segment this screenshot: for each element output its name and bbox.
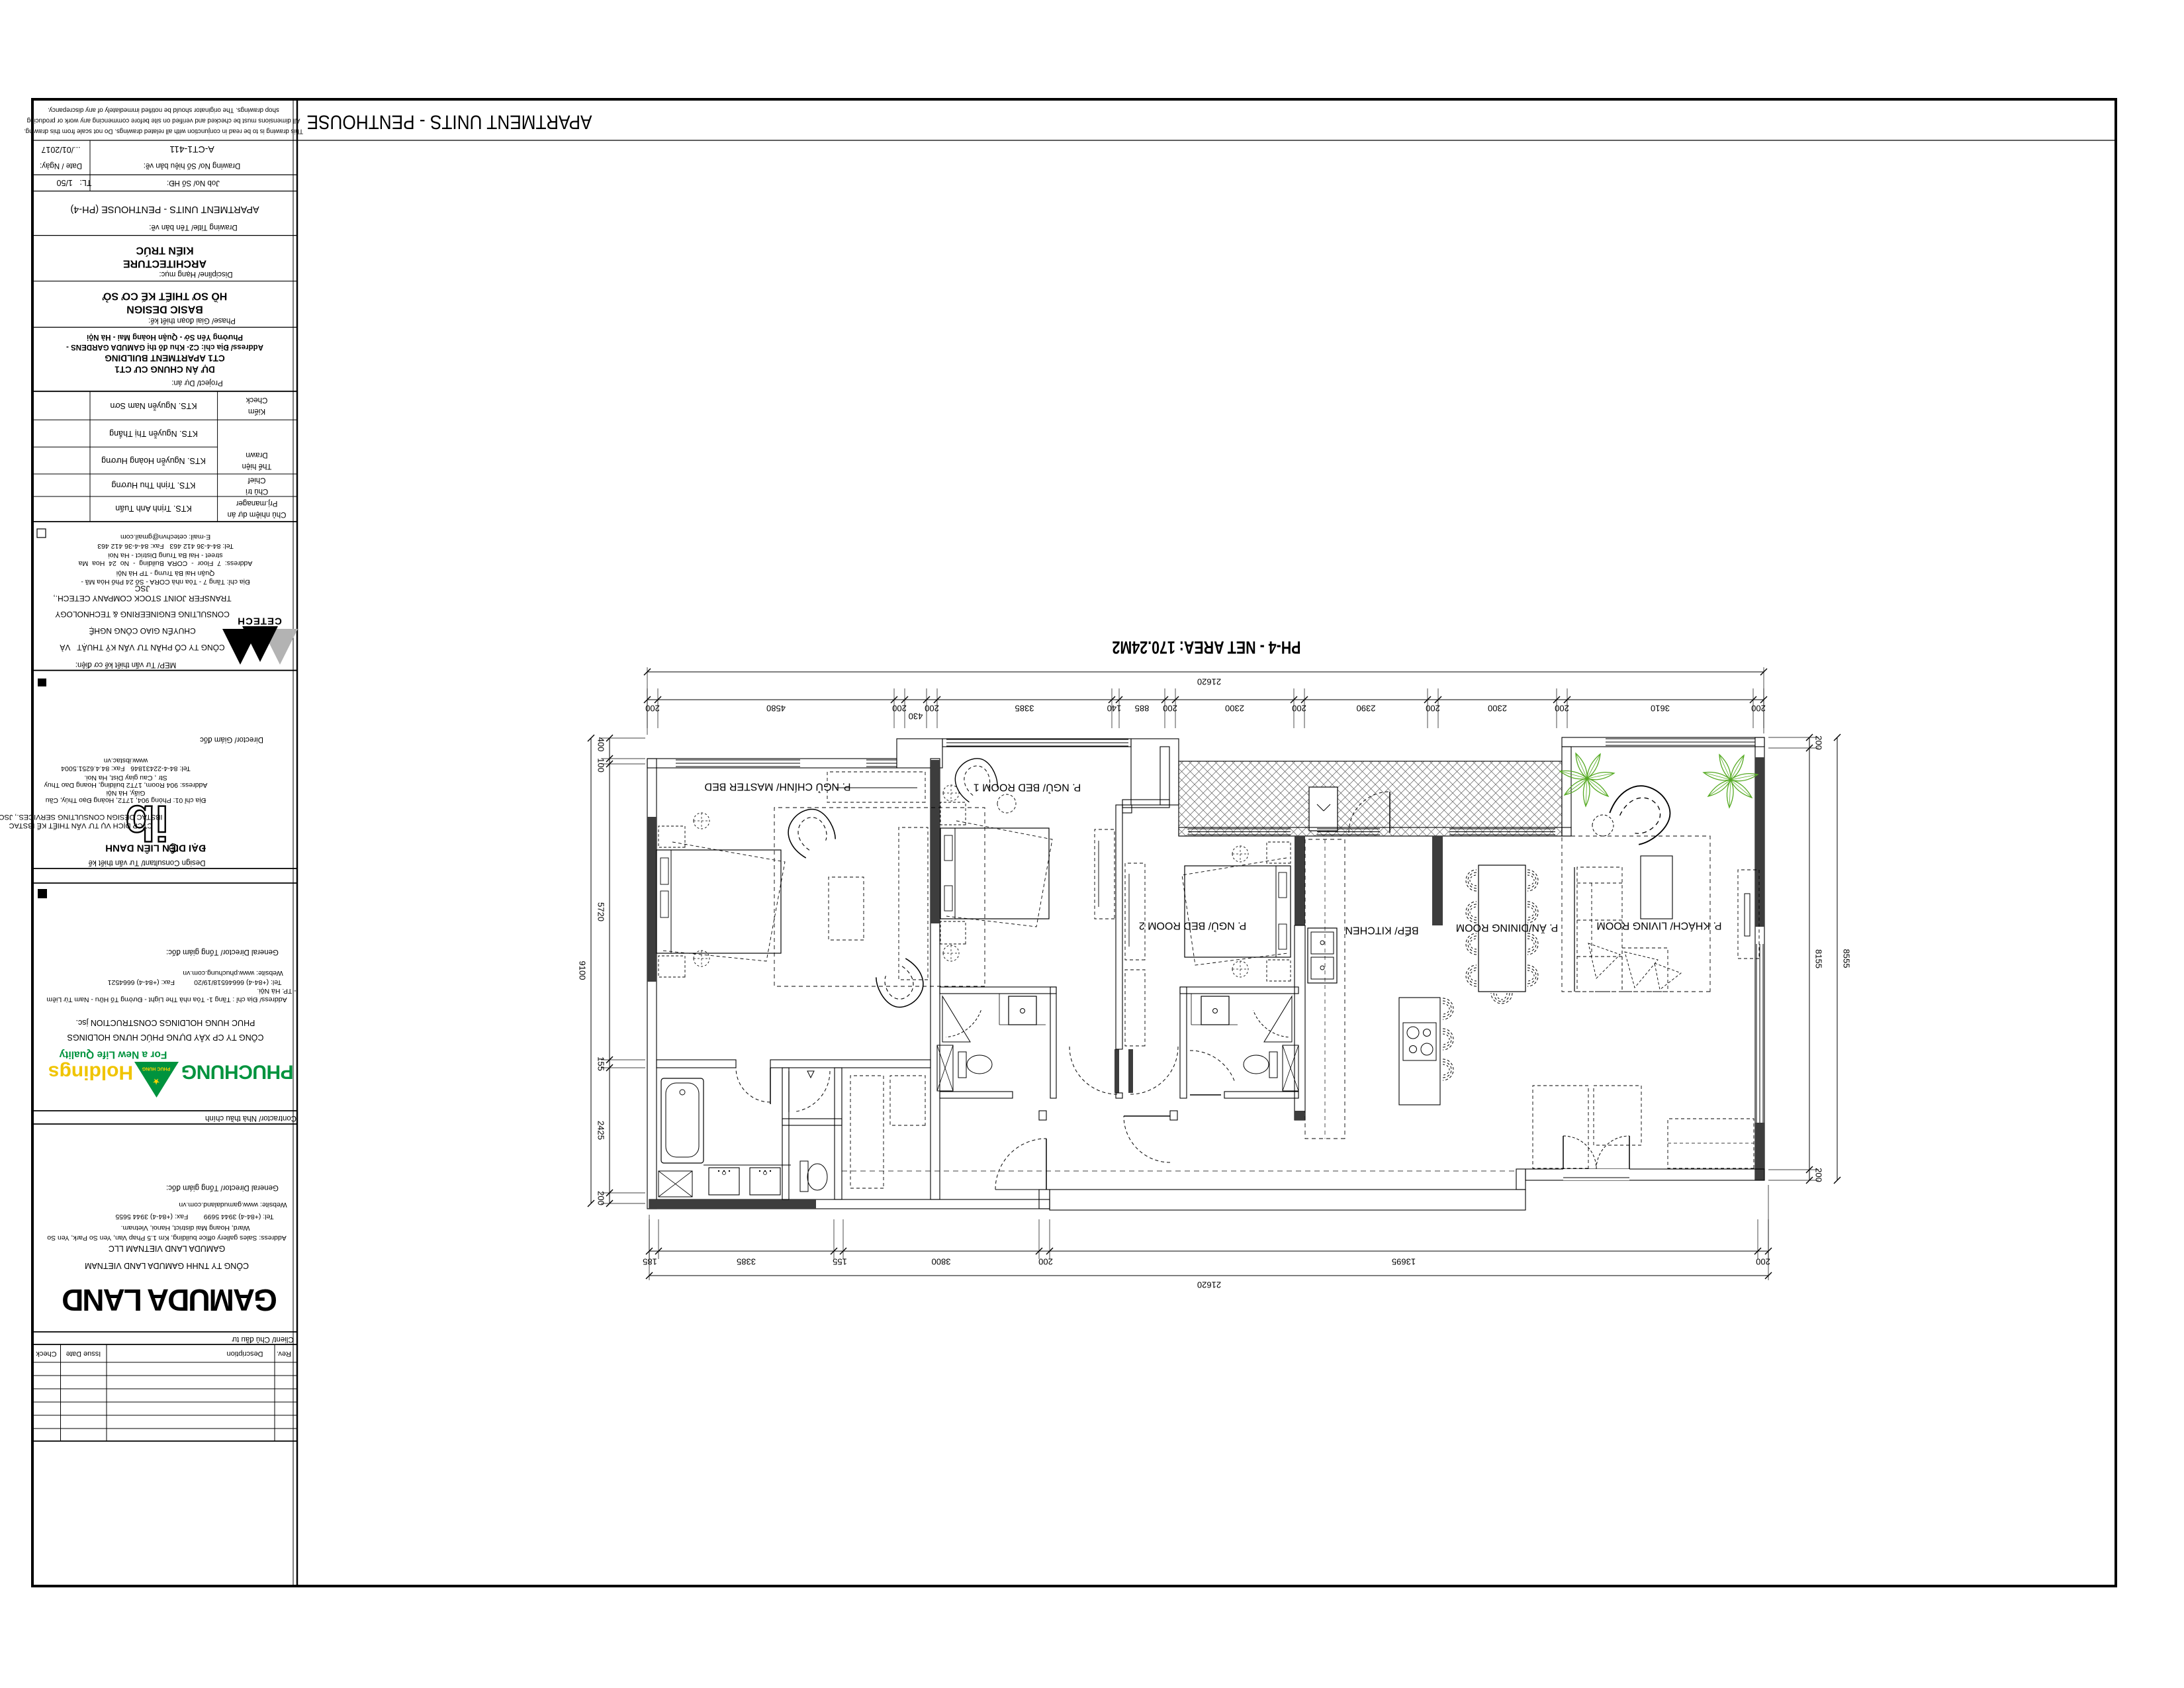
svg-text:.../01/2017: .../01/2017	[41, 145, 80, 154]
svg-text:Check: Check	[36, 1350, 57, 1358]
svg-text:General Director/ Tổng giám đố: General Director/ Tổng giám đốc:	[166, 948, 279, 956]
svg-text:Ward, Hoang Mai district, Hano: Ward, Hoang Mai district, Hanoi, Vietnam…	[121, 1224, 250, 1232]
svg-text:CÔNG TY CỔ PHẦN TƯ VẤN KỸ THUẬ: CÔNG TY CỔ PHẦN TƯ VẤN KỸ THUẬT VÀ	[60, 643, 224, 653]
svg-text:200: 200	[1426, 704, 1440, 714]
svg-text:885: 885	[1135, 704, 1150, 714]
svg-text:P. NGỦ CHÍNH/ MASTER BED: P. NGỦ CHÍNH/ MASTER BED	[704, 781, 850, 794]
svg-text:Website: www.gamudaland.com.vn: Website: www.gamudaland.com.vn	[179, 1201, 287, 1209]
svg-text:PH-4 - NET AREA: 170.24M2: PH-4 - NET AREA: 170.24M2	[1113, 637, 1301, 657]
svg-text:Contractor/ Nhà thầu chính: Contractor/ Nhà thầu chính	[205, 1114, 296, 1122]
svg-text:CÔNG TY TNHH GAMUDA LAND VIETN: CÔNG TY TNHH GAMUDA LAND VIETNAM	[85, 1261, 249, 1271]
svg-text:Phase/ Giai đoạn thiết kế:: Phase/ Giai đoạn thiết kế:	[148, 316, 236, 324]
svg-text:TL: 1/50: TL: 1/50	[57, 178, 92, 187]
svg-text:200: 200	[1038, 1257, 1053, 1267]
svg-text:KTS. Nguyễn Nam Sơn: KTS. Nguyễn Nam Sơn	[110, 401, 197, 411]
svg-text:2425: 2425	[596, 1121, 606, 1140]
svg-text:E-mail: cetechvn@gmail.com: E-mail: cetechvn@gmail.com	[120, 533, 210, 541]
svg-text:8155: 8155	[1814, 949, 1824, 968]
svg-text:KTS. Nguyễn Hoàng Hương: KTS. Nguyễn Hoàng Hương	[101, 456, 206, 466]
svg-text:3610: 3610	[1651, 704, 1670, 714]
svg-text:3385: 3385	[1015, 704, 1034, 714]
svg-text:- TP. Hà Nội.: - TP. Hà Nội.	[257, 987, 296, 995]
svg-text:CHUYỂN GIAO CÔNG NGHỆ: CHUYỂN GIAO CÔNG NGHỆ	[89, 626, 195, 636]
svg-text:Thể hiện: Thể hiện	[242, 462, 272, 470]
svg-text:CT1 APARTMENT BUILDING: CT1 APARTMENT BUILDING	[105, 353, 225, 363]
svg-text:A-CT1-411: A-CT1-411	[169, 144, 214, 155]
svg-text:Design Consultant/ Tư vấn thiế: Design Consultant/ Tư vấn thiết kế	[88, 859, 205, 867]
svg-text:For a New Life Quality: For a New Life Quality	[59, 1049, 167, 1060]
svg-text:ARCHITECTURE: ARCHITECTURE	[123, 258, 207, 269]
svg-text:Str , Cau giay Dist, Ha Noi.: Str , Cau giay Dist, Ha Noi.	[84, 774, 167, 782]
svg-text:200: 200	[925, 704, 939, 714]
svg-text:8555: 8555	[1842, 949, 1852, 968]
svg-text:www.ibstac.vn: www.ibstac.vn	[104, 757, 149, 765]
svg-text:P. NGỦ/ BED ROOM 1: P. NGỦ/ BED ROOM 1	[974, 782, 1081, 794]
svg-text:Address/ Địa chỉ : Tầng 1- Tòa: Address/ Địa chỉ : Tầng 1- Tòa nhà The L…	[46, 996, 287, 1004]
svg-text:General Director/ Tổng giám đố: General Director/ Tổng giám đốc:	[166, 1184, 279, 1192]
svg-text:CÔNG TY CP XÂY DỰNG PHÚC HƯNG: CÔNG TY CP XÂY DỰNG PHÚC HƯNG HOLDINGS	[68, 1033, 264, 1043]
svg-text:Website: www.phuchung.com.vn: Website: www.phuchung.com.vn	[183, 969, 283, 977]
svg-text:200: 200	[596, 1191, 606, 1205]
svg-text:Tel: (+84-4) 66646518/19/20: Tel: (+84-4) 66646518/19/20 Fax: (+84-4)…	[108, 978, 282, 986]
svg-text:★: ★	[152, 1077, 160, 1087]
svg-text:200: 200	[1555, 704, 1569, 714]
svg-text:KTS. Trịnh Anh Tuấn: KTS. Trịnh Anh Tuấn	[115, 504, 191, 513]
svg-text:9100: 9100	[578, 961, 588, 980]
svg-text:3800: 3800	[932, 1257, 951, 1267]
svg-text:Project/ Dự án:: Project/ Dự án:	[171, 379, 222, 387]
svg-text:PHUC HUNG: PHUC HUNG	[142, 1066, 170, 1071]
svg-text:100: 100	[596, 758, 606, 773]
svg-text:21620: 21620	[1197, 677, 1221, 687]
svg-text:Drawing Title/ Tên bản vẽ:: Drawing Title/ Tên bản vẽ:	[149, 223, 237, 231]
svg-text:400: 400	[596, 737, 606, 752]
svg-text:185: 185	[643, 1257, 657, 1267]
svg-text:5720: 5720	[596, 902, 606, 921]
svg-text:430: 430	[909, 712, 923, 722]
svg-text:2300: 2300	[1225, 704, 1244, 714]
svg-text:13695: 13695	[1392, 1257, 1416, 1267]
svg-text:Giấy, Hà Nội: Giấy, Hà Nội	[107, 789, 146, 797]
svg-text:Tel: (+84-4) 3944 5699: Tel: (+84-4) 3944 5699 Fax: (+84-4) 3944…	[115, 1213, 273, 1221]
svg-text:2390: 2390	[1357, 704, 1376, 714]
svg-text:P. KHÁCH/ LIVING ROOM: P. KHÁCH/ LIVING ROOM	[1596, 920, 1721, 933]
svg-text:Tel: 84-4-22431846 Fax: 84.4: Tel: 84-4-22431846 Fax: 84.4.6251.5004	[61, 765, 191, 773]
svg-text:Chủ trì: Chủ trì	[246, 487, 269, 495]
svg-text:Rev.: Rev.	[277, 1350, 291, 1358]
svg-text:Address: Sales gallery office: Address: Sales gallery office building, …	[47, 1234, 287, 1242]
svg-text:BẾP/ KITCHEN: BẾP/ KITCHEN	[1345, 925, 1418, 937]
svg-text:BASIC DESIGN: BASIC DESIGN	[126, 304, 203, 315]
svg-text:Address: 904 Room, 17T2 buildi: Address: 904 Room, 17T2 building, Hoang …	[44, 781, 207, 789]
svg-text:200: 200	[892, 704, 907, 714]
svg-text:Check: Check	[246, 396, 267, 404]
svg-text:4580: 4580	[766, 704, 786, 714]
svg-text:Địa chỉ 01: Phòng 904, 17T2, H: Địa chỉ 01: Phòng 904, 17T2, Hoàng Đạo T…	[46, 796, 206, 804]
svg-text:CTCP DỊCH VỤ TƯ VẤN THIẾT KẾ I: CTCP DỊCH VỤ TƯ VẤN THIẾT KẾ IBSTAC	[9, 821, 153, 830]
svg-text:PHUC HUNG HOLDINGS CONSTRUCTIO: PHUC HUNG HOLDINGS CONSTRUCTION jsc.	[76, 1018, 255, 1027]
svg-text:GAMUDA LAND: GAMUDA LAND	[62, 1283, 277, 1317]
svg-text:3385: 3385	[737, 1257, 756, 1267]
svg-text:All dimensions must be checked: All dimensions must be checked and verif…	[27, 117, 300, 124]
svg-text:200: 200	[1292, 704, 1306, 714]
svg-text:KTS. Nguyễn Thị Thắng: KTS. Nguyễn Thị Thắng	[109, 429, 198, 439]
svg-text:Holdings: Holdings	[48, 1062, 133, 1084]
svg-text:2300: 2300	[1488, 704, 1507, 714]
svg-text:200: 200	[1163, 704, 1177, 714]
svg-text:Client/ Chủ đầu tư: Client/ Chủ đầu tư	[232, 1335, 294, 1343]
svg-text:GAMUDA LAND VIETNAM LLC: GAMUDA LAND VIETNAM LLC	[109, 1244, 225, 1253]
svg-text:Tel: 84-4-36 412 463 Fax: 84: Tel: 84-4-36 412 463 Fax: 84-4-36 412 46…	[97, 542, 234, 550]
svg-text:CONSULTING ENGINEERING & TECHN: CONSULTING ENGINEERING & TECHNOLOGY	[55, 610, 230, 619]
svg-text:APARTMENT UNITS - PENTHOUSE: APARTMENT UNITS - PENTHOUSE	[307, 111, 592, 133]
svg-text:Kiểm: Kiểm	[248, 407, 265, 415]
svg-text:Prj.manager: Prj.manager	[236, 499, 278, 507]
svg-text:street - Hai Ba Trung District: street - Hai Ba Trung District - Ha Noi	[108, 551, 222, 559]
svg-text:KIẾN TRÚC: KIẾN TRÚC	[136, 245, 194, 258]
svg-text:Director/ Giám đốc: Director/ Giám đốc	[200, 735, 263, 743]
svg-text:Drawn: Drawn	[246, 451, 267, 459]
svg-text:200: 200	[1814, 735, 1824, 750]
svg-text:Date / Ngày:: Date / Ngày:	[40, 162, 82, 169]
svg-text:Chief: Chief	[248, 476, 266, 484]
svg-text:Phường Yên Sở - Quận Hoàng Mai: Phường Yên Sở - Quận Hoàng Mai - Hà Nội	[87, 333, 243, 341]
svg-text:Chủ nhiệm dự án: Chủ nhiệm dự án	[228, 510, 287, 518]
svg-text:APARTMENT UNITS - PENTHOUSE (P: APARTMENT UNITS - PENTHOUSE (PH-4)	[70, 204, 259, 214]
svg-text:200: 200	[1756, 1257, 1770, 1267]
svg-text:200: 200	[645, 704, 660, 714]
svg-text:shop drawings. The originator: shop drawings. The originator should be …	[48, 107, 279, 114]
svg-text:Discipline/ Hạng mục:: Discipline/ Hạng mục:	[159, 270, 232, 278]
svg-text:PHUCHUNG: PHUCHUNG	[181, 1061, 293, 1083]
svg-text:R: R	[171, 845, 175, 851]
svg-text:200: 200	[1814, 1168, 1824, 1182]
svg-text:P. NGỦ/ BED ROOM 2: P. NGỦ/ BED ROOM 2	[1139, 920, 1247, 933]
svg-text:Issue Date: Issue Date	[66, 1350, 101, 1358]
svg-text:This drawing is to be read in: This drawing is to be read in conjunctio…	[24, 128, 303, 135]
svg-text:CETECH: CETECH	[237, 616, 282, 627]
svg-text:IBSTAC DESIGN CONSULTING SERVI: IBSTAC DESIGN CONSULTING SERVICES., JSC	[0, 813, 162, 821]
svg-text:Quận Hai Bà Trưng - TP Hà Nội: Quận Hai Bà Trưng - TP Hà Nội	[116, 569, 214, 577]
svg-text:HỒ SƠ THIẾT KẾ CƠ SỞ: HỒ SƠ THIẾT KẾ CƠ SỞ	[102, 291, 227, 303]
svg-text:155: 155	[596, 1056, 606, 1071]
svg-text:Địa chỉ: Tầng 7 - Tòa nhà CORA: Địa chỉ: Tầng 7 - Tòa nhà CORA - Số 24 P…	[81, 578, 250, 586]
svg-text:Address: 7 Floor - CORA B: Address: 7 Floor - CORA Building - No 24…	[79, 559, 253, 567]
svg-text:KTS. Trịnh Thu Hương: KTS. Trịnh Thu Hương	[112, 481, 196, 490]
svg-text:Description: Description	[226, 1350, 263, 1358]
svg-text:Address/ Địa chỉ: C2- Khu đô t: Address/ Địa chỉ: C2- Khu đô thị GAMUDA …	[66, 343, 263, 351]
svg-text:Job No/ Số HĐ:: Job No/ Số HĐ:	[167, 179, 220, 187]
svg-text:140: 140	[1107, 704, 1122, 714]
svg-text:200: 200	[1751, 704, 1766, 714]
svg-text:155: 155	[833, 1257, 847, 1267]
svg-text:TRANSFER JOINT STOCK COMPANY C: TRANSFER JOINT STOCK COMPANY CETECH.,	[53, 594, 231, 603]
svg-text:P. ĂN/DINING ROOM: P. ĂN/DINING ROOM	[1456, 922, 1558, 935]
svg-text:MEP/ Tư vấn thiết kế cơ điện:: MEP/ Tư vấn thiết kế cơ điện:	[75, 661, 176, 669]
svg-text:DỰ ÁN CHUNG CƯ CT1: DỰ ÁN CHUNG CƯ CT1	[114, 365, 215, 375]
svg-text:21620: 21620	[1197, 1280, 1221, 1290]
svg-text:Drawing No/ Số hiệu bản vẽ:: Drawing No/ Số hiệu bản vẽ:	[144, 162, 240, 169]
